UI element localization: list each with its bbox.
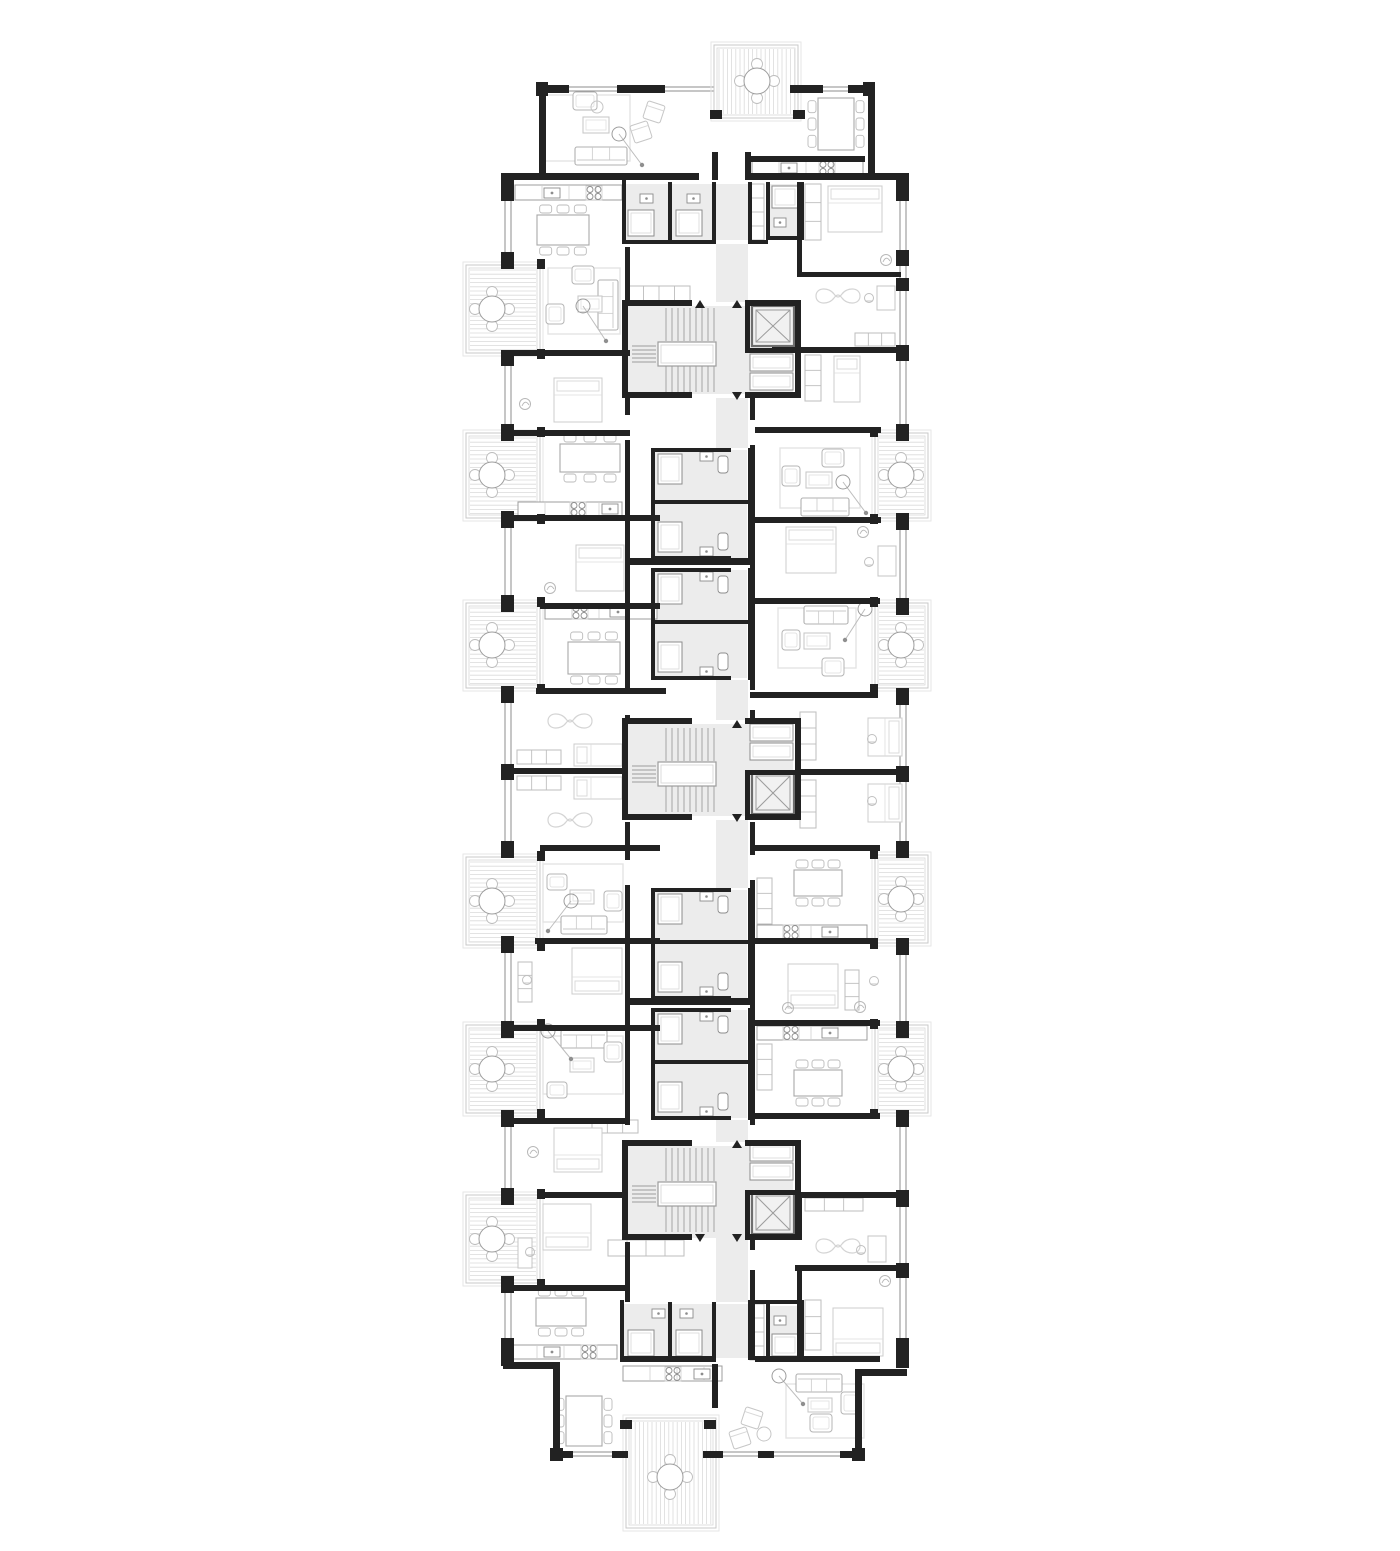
wall <box>537 349 545 359</box>
wall <box>750 692 878 698</box>
shower-or-storage <box>750 724 793 741</box>
bed <box>576 545 624 591</box>
sink-drain <box>788 167 791 170</box>
wall <box>501 173 514 201</box>
wardrobe <box>800 780 816 828</box>
wall <box>622 300 628 398</box>
bed <box>833 1308 883 1356</box>
wall <box>501 936 514 953</box>
sink-drain <box>701 1373 704 1376</box>
wall <box>748 182 752 240</box>
wall <box>870 597 878 607</box>
wall <box>855 1369 862 1458</box>
bed <box>554 378 602 422</box>
wall <box>651 500 751 504</box>
wall <box>537 851 545 861</box>
wall <box>622 180 626 242</box>
toilet <box>718 653 728 670</box>
balcony-round-table <box>888 886 914 912</box>
wall <box>745 152 751 180</box>
toilet <box>718 973 728 990</box>
wall <box>537 1109 545 1119</box>
shower-or-storage <box>658 962 682 992</box>
wall <box>710 110 722 119</box>
wall <box>501 1188 514 1205</box>
shower-or-storage <box>750 373 793 390</box>
wall <box>766 236 804 240</box>
wall <box>755 598 880 604</box>
wall <box>745 1140 801 1146</box>
kitchen-counter <box>752 161 863 175</box>
sink-drain <box>705 990 708 993</box>
service-zone <box>716 1120 748 1142</box>
balcony-round-table <box>479 296 505 322</box>
wardrobe <box>518 962 532 1002</box>
wall <box>755 1020 880 1026</box>
floor-lamp-base <box>843 638 847 642</box>
wall <box>503 350 630 356</box>
dining-chair <box>604 1415 612 1427</box>
dining-table <box>536 1298 586 1326</box>
wall <box>668 182 672 240</box>
wall <box>539 85 546 175</box>
wall <box>501 686 514 703</box>
sofa <box>561 1030 607 1048</box>
sofa <box>801 498 849 516</box>
dining-table <box>537 215 589 245</box>
bed <box>543 1204 591 1250</box>
wall <box>625 398 630 415</box>
wall <box>896 938 909 955</box>
dining-chair <box>812 860 824 868</box>
coffee-table <box>583 117 609 133</box>
wall <box>537 941 545 951</box>
floor-plan <box>0 0 1400 1551</box>
wall <box>712 152 718 180</box>
wall <box>553 1362 560 1458</box>
sink-drain <box>685 1312 688 1315</box>
sink-drain <box>645 197 648 200</box>
wall <box>870 427 878 437</box>
wardrobe <box>845 970 859 1010</box>
wall <box>625 558 755 565</box>
balcony-round-table <box>479 632 505 658</box>
sink-drain <box>705 575 708 578</box>
wardrobe <box>517 750 561 764</box>
wall <box>896 424 909 441</box>
shower-or-storage <box>658 522 682 552</box>
dining-chair <box>796 1098 808 1106</box>
dining-chair <box>604 1398 612 1410</box>
service-zone <box>716 680 748 720</box>
shower-or-storage <box>750 354 793 371</box>
wall <box>620 1300 624 1362</box>
dining-chair <box>828 898 840 906</box>
shower-or-storage <box>658 642 682 672</box>
wardrobe <box>805 184 821 240</box>
wardrobe <box>757 878 772 924</box>
wall <box>755 517 881 523</box>
wall <box>501 252 514 269</box>
shower-or-storage <box>628 210 654 236</box>
shower-or-storage <box>676 1330 702 1356</box>
kitchen-counter <box>510 1345 617 1359</box>
wall <box>625 565 630 690</box>
dining-chair <box>604 474 616 482</box>
wall <box>536 688 666 694</box>
wall <box>745 1190 750 1240</box>
sink-drain <box>551 192 554 195</box>
sink-drain <box>609 508 612 511</box>
wall <box>745 156 865 162</box>
wall <box>748 1300 768 1304</box>
dining-chair <box>557 205 569 213</box>
wall <box>750 1113 880 1119</box>
sink-drain <box>705 550 708 553</box>
wall <box>745 718 801 724</box>
wall <box>625 822 630 860</box>
wall <box>800 1302 804 1360</box>
wall <box>622 718 628 820</box>
wall <box>625 885 630 998</box>
wall <box>625 998 755 1005</box>
kitchen-counter <box>515 185 622 200</box>
toilet <box>718 1016 728 1033</box>
wardrobe <box>805 355 821 401</box>
shower-or-storage <box>750 743 793 760</box>
wall <box>758 1451 774 1458</box>
dining-chair <box>796 898 808 906</box>
wall <box>537 1279 545 1289</box>
floor-plan-page <box>0 0 1400 1551</box>
sink-drain <box>705 670 708 673</box>
dining-chair <box>571 676 583 684</box>
coffee-table <box>808 1398 832 1412</box>
dining-table <box>560 444 620 472</box>
wall <box>766 1302 770 1360</box>
stair-landing <box>658 342 716 366</box>
wall <box>651 1060 751 1064</box>
balcony-round-table <box>888 1056 914 1082</box>
wall <box>651 940 751 944</box>
dining-chair <box>828 860 840 868</box>
toilet <box>718 456 728 473</box>
wall <box>622 392 692 398</box>
dining-chair <box>572 1328 584 1336</box>
dining-chair <box>538 1328 550 1336</box>
shower-or-storage <box>750 1163 793 1180</box>
dining-chair <box>557 247 569 255</box>
wall <box>745 1190 801 1195</box>
wardrobe <box>805 1198 863 1211</box>
dining-table <box>794 870 842 896</box>
desk <box>877 286 895 310</box>
dining-chair <box>812 1098 824 1106</box>
dining-chair <box>856 101 864 113</box>
dining-chair <box>808 118 816 130</box>
wall <box>870 1019 878 1029</box>
wall <box>750 1240 755 1250</box>
bed <box>788 964 838 1008</box>
balcony-round-table <box>888 632 914 658</box>
floor-lamp-base <box>801 1402 805 1406</box>
wall <box>651 1008 731 1012</box>
wall <box>703 1451 723 1458</box>
shower-or-storage <box>658 574 682 604</box>
wall <box>712 1302 716 1360</box>
dining-chair <box>540 247 552 255</box>
wall <box>540 845 660 851</box>
dining-chair <box>856 118 864 130</box>
wall <box>795 718 801 820</box>
dining-chair <box>574 205 586 213</box>
wall <box>795 1265 905 1271</box>
shower-or-storage <box>658 1082 682 1112</box>
bed <box>786 527 836 573</box>
wall <box>793 110 805 119</box>
balcony-round-table <box>479 888 505 914</box>
sofa <box>561 916 607 934</box>
bed <box>828 186 882 232</box>
wall <box>745 348 801 353</box>
wall <box>625 1242 630 1302</box>
wall <box>550 1448 563 1461</box>
wall <box>620 1420 632 1429</box>
wall <box>503 515 660 521</box>
sink-drain <box>705 895 708 898</box>
toilet <box>718 533 728 550</box>
wall <box>651 1116 731 1120</box>
wall <box>798 769 901 775</box>
wall <box>798 1192 901 1198</box>
wall <box>622 1140 692 1146</box>
dining-chair <box>584 474 596 482</box>
floor-lamp-base <box>864 511 868 515</box>
sofa <box>804 606 848 624</box>
dining-chair <box>796 860 808 868</box>
dining-table <box>818 98 854 150</box>
wall <box>537 597 545 607</box>
sink-drain <box>657 1312 660 1315</box>
dining-chair <box>812 898 824 906</box>
wall <box>540 1192 628 1198</box>
wall <box>503 430 630 436</box>
bed <box>572 948 622 994</box>
wall <box>870 684 878 694</box>
wall <box>501 841 514 858</box>
dining-chair <box>564 474 576 482</box>
wall <box>622 814 692 820</box>
balcony-round-table <box>657 1464 683 1490</box>
coffee-table <box>806 472 832 488</box>
wall <box>896 1110 909 1127</box>
service-zone <box>716 184 748 240</box>
wall <box>622 300 692 306</box>
service-zone <box>716 1238 748 1302</box>
wall <box>620 1356 716 1362</box>
wall <box>668 1302 672 1360</box>
wall <box>704 1420 716 1429</box>
dining-chair <box>588 676 600 684</box>
bed <box>834 356 860 402</box>
wall <box>537 427 545 437</box>
wall <box>896 1021 909 1038</box>
wall <box>896 598 909 615</box>
wall <box>617 85 665 93</box>
balcony-round-table <box>744 68 770 94</box>
wall <box>503 1285 630 1291</box>
wall <box>745 770 750 820</box>
wall <box>625 440 630 558</box>
toilet <box>718 896 728 913</box>
shower-or-storage <box>658 894 682 924</box>
wall <box>750 398 755 420</box>
wall <box>537 259 545 269</box>
wall <box>896 173 909 201</box>
sink-drain <box>551 1351 554 1354</box>
shower-or-storage <box>658 454 682 484</box>
kitchen-counter <box>757 925 867 939</box>
wall <box>896 250 909 266</box>
wall <box>651 676 731 680</box>
wall <box>745 392 801 398</box>
wall <box>766 1300 804 1304</box>
wall <box>857 1369 907 1376</box>
dining-chair <box>605 632 617 640</box>
wall <box>503 768 627 774</box>
floor-lamp-base <box>546 929 550 933</box>
dining-chair <box>588 632 600 640</box>
wall <box>745 300 801 306</box>
sink-drain <box>692 197 695 200</box>
service-zone <box>716 1304 748 1358</box>
wall <box>896 513 909 530</box>
wall <box>537 684 545 694</box>
wall <box>748 240 768 244</box>
wall <box>755 1356 880 1362</box>
wardrobe <box>855 333 895 346</box>
wardrobe <box>517 776 561 790</box>
wall <box>766 182 770 240</box>
wall <box>503 1025 660 1031</box>
wardrobe <box>757 1044 772 1090</box>
dining-chair <box>604 1432 612 1444</box>
service-zone <box>716 820 748 888</box>
toilet <box>718 576 728 593</box>
wall <box>537 1189 545 1199</box>
wall <box>896 841 909 858</box>
wall <box>896 688 909 705</box>
toilet <box>718 1093 728 1110</box>
wall <box>755 427 881 433</box>
wall <box>612 1451 628 1458</box>
wall <box>896 1338 909 1368</box>
dining-chair <box>540 205 552 213</box>
desk <box>518 1238 532 1268</box>
sink-drain <box>829 931 832 934</box>
dining-chair <box>555 1328 567 1336</box>
wall <box>852 1448 865 1461</box>
wall <box>868 85 875 175</box>
sink-drain <box>705 1015 708 1018</box>
balcony-round-table <box>479 1056 505 1082</box>
wall <box>870 939 878 949</box>
sink-drain <box>829 1032 832 1035</box>
sink-drain <box>705 1110 708 1113</box>
wall <box>535 938 660 944</box>
bed <box>554 1128 602 1172</box>
dining-chair <box>828 1060 840 1068</box>
dining-chair <box>571 632 583 640</box>
sofa <box>796 1374 842 1392</box>
wall <box>541 173 699 180</box>
sink-drain <box>779 1319 782 1322</box>
wall <box>651 568 731 572</box>
wall <box>651 888 731 892</box>
balcony-round-table <box>479 462 505 488</box>
stair-landing <box>658 1182 716 1206</box>
coffee-table <box>804 633 830 649</box>
wall <box>622 1234 692 1240</box>
wall <box>625 1005 630 1125</box>
desk <box>868 1236 886 1262</box>
service-zone <box>716 244 748 302</box>
wall <box>540 603 660 609</box>
wall <box>797 272 901 277</box>
wall <box>750 845 880 851</box>
kitchen-counter <box>757 1026 867 1040</box>
sofa <box>575 147 627 165</box>
floor-lamp-base <box>640 163 644 167</box>
sink-drain <box>705 455 708 458</box>
wall <box>870 514 878 524</box>
wall <box>745 814 801 820</box>
floor-lamp-base <box>569 1057 573 1061</box>
balcony-round-table <box>888 462 914 488</box>
wall <box>537 514 545 524</box>
wall <box>651 620 751 624</box>
wall <box>651 448 731 452</box>
coffee-table <box>570 890 594 904</box>
wall <box>501 1338 514 1366</box>
shower-or-storage <box>750 1144 793 1161</box>
wall <box>750 938 878 944</box>
wall <box>748 1302 752 1360</box>
wall <box>625 247 630 303</box>
desk <box>878 546 896 576</box>
wall <box>748 173 877 180</box>
wall <box>745 300 750 352</box>
dining-chair <box>808 101 816 113</box>
wall <box>622 1140 628 1240</box>
wall <box>712 182 716 240</box>
wardrobe <box>800 712 816 760</box>
dining-chair <box>808 135 816 147</box>
wall <box>537 1019 545 1029</box>
wall <box>622 718 692 724</box>
dining-table <box>566 1396 602 1446</box>
balcony-round-table <box>479 1226 505 1252</box>
floor-lamp-base <box>604 339 608 343</box>
wall <box>501 595 514 612</box>
dining-table <box>794 1070 842 1096</box>
wall <box>870 849 878 859</box>
coffee-table <box>570 1058 594 1072</box>
stair-landing <box>658 762 716 786</box>
shower-or-storage <box>658 1014 682 1044</box>
wardrobe <box>805 1300 821 1350</box>
wall <box>622 240 716 244</box>
